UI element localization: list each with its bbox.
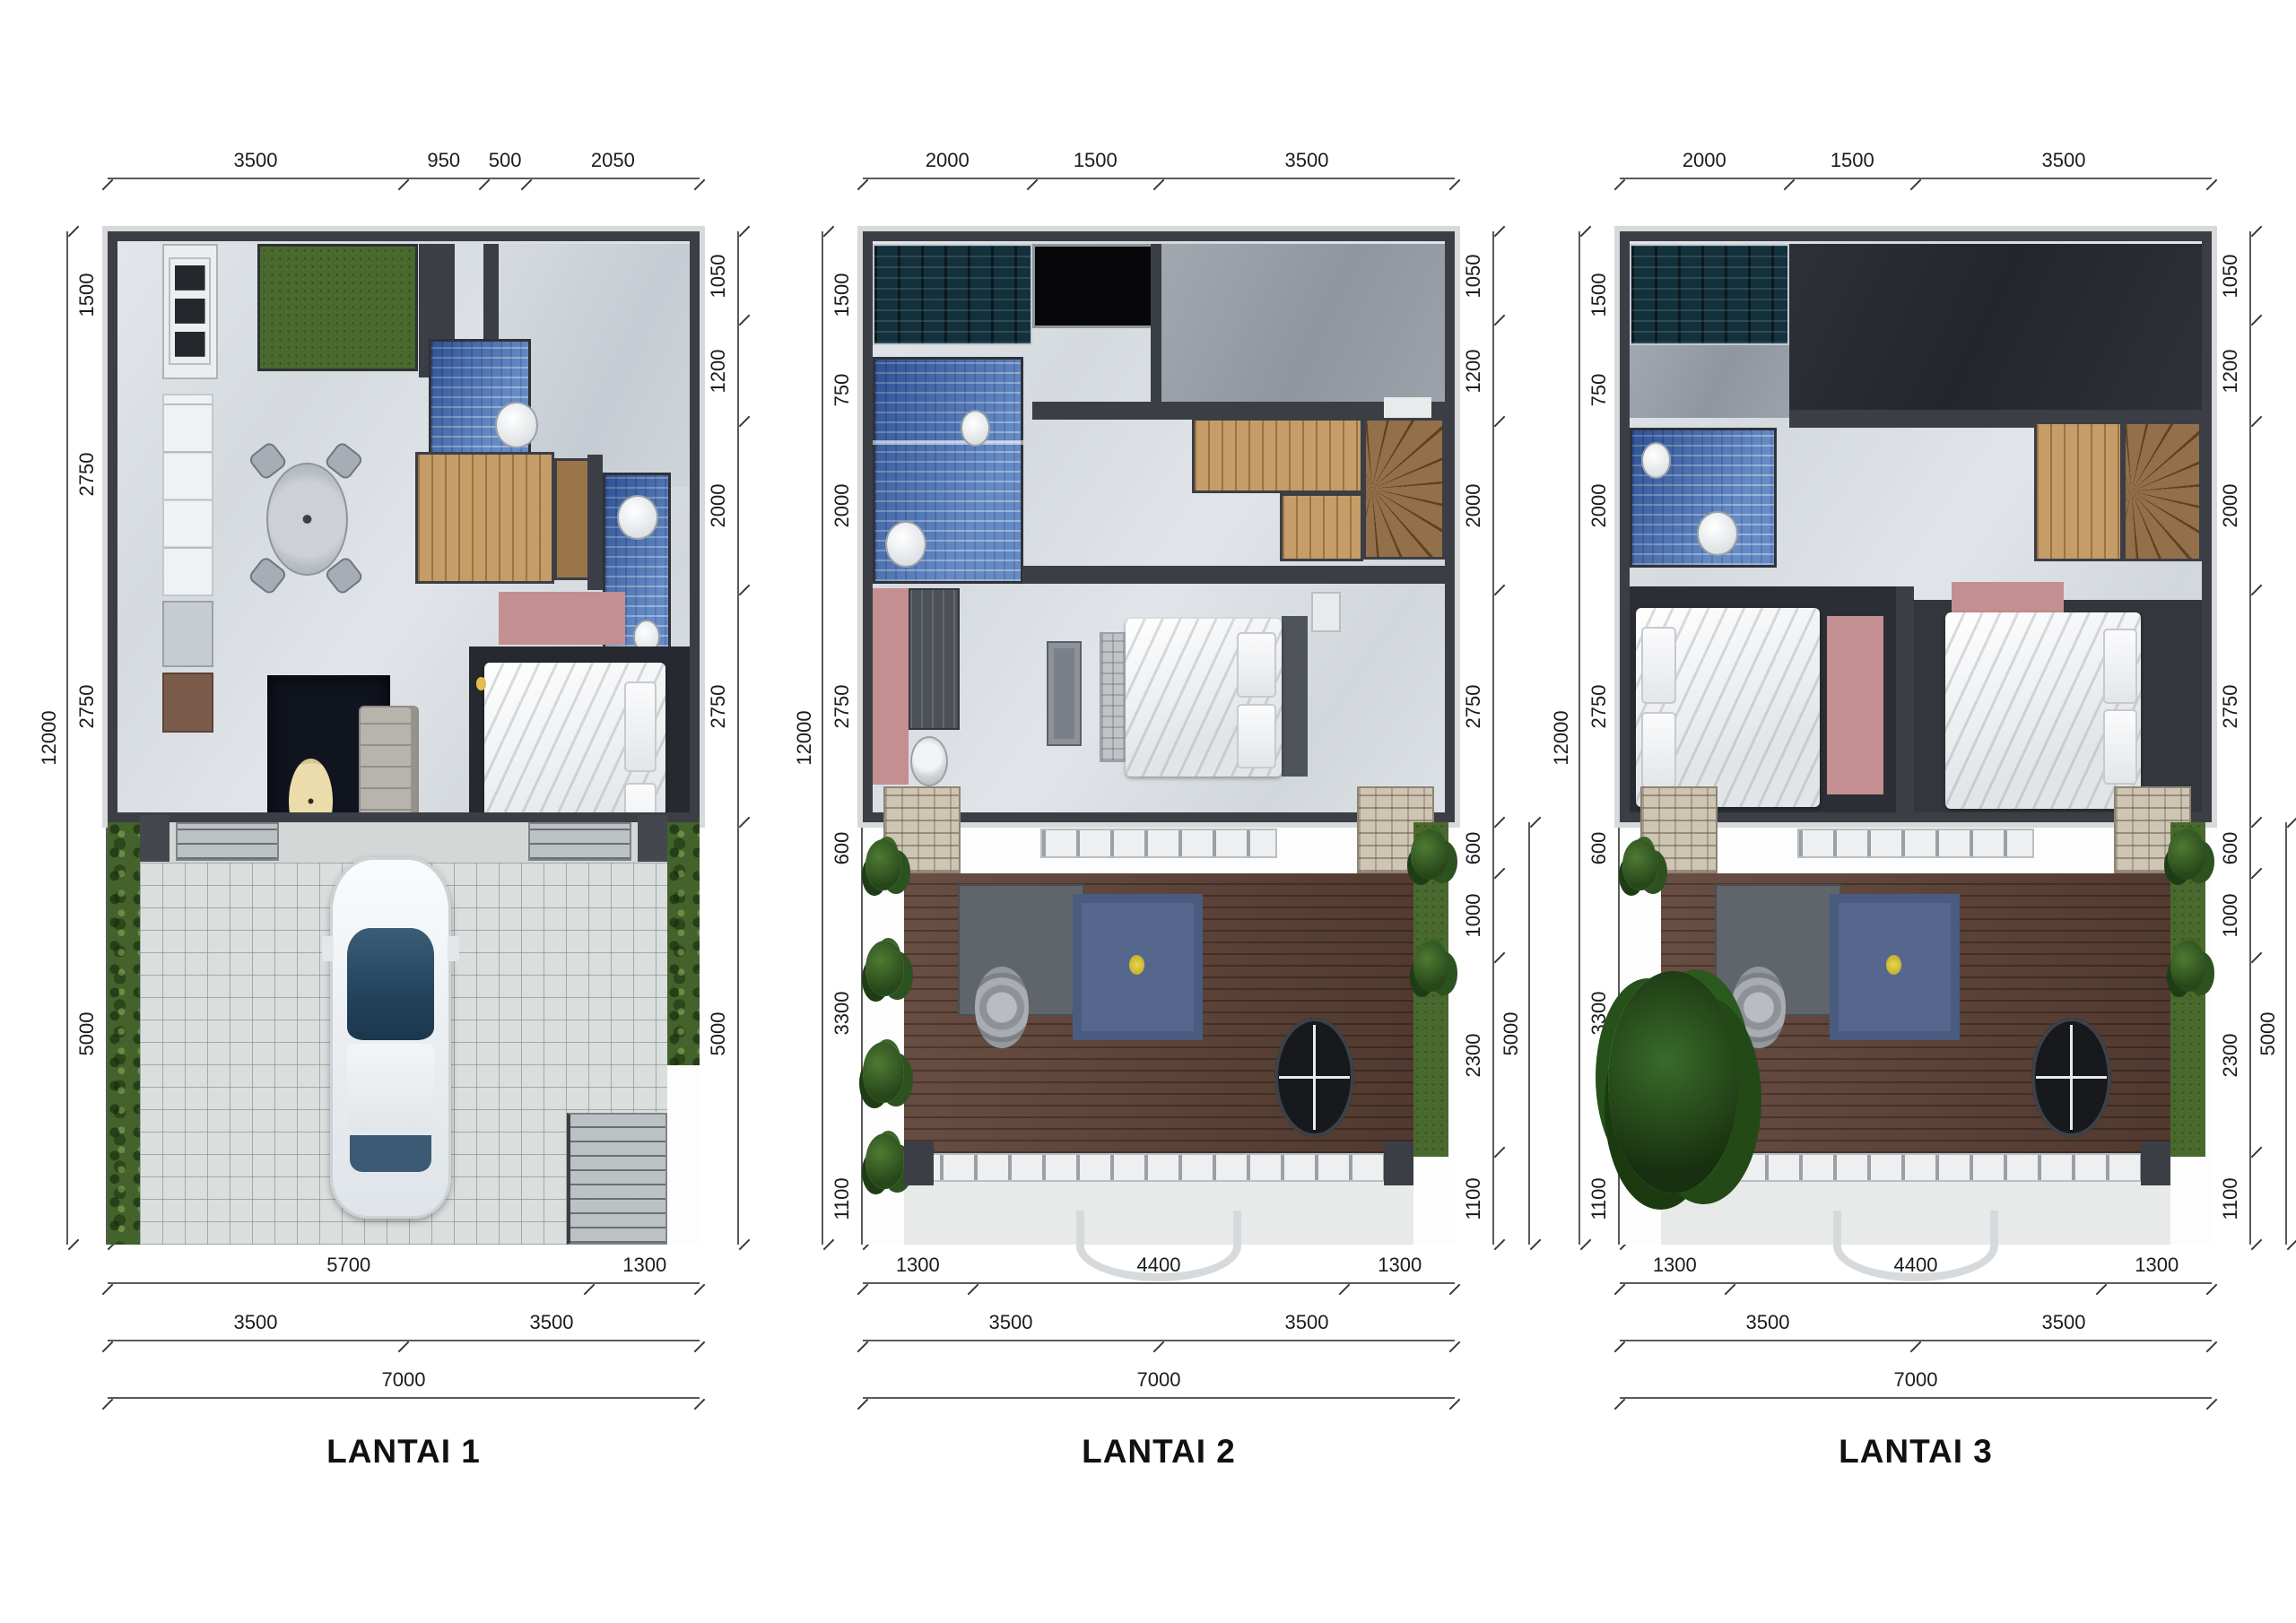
- dim-value: 600: [1587, 831, 1611, 864]
- plan-canvas-lantai-1: [108, 231, 700, 1245]
- dim-value: 1300: [1344, 1254, 1455, 1277]
- dim-value: 1100: [1462, 1177, 1485, 1219]
- dim-value: 1300: [2101, 1254, 2212, 1277]
- dim-segment: 12000: [1544, 231, 1580, 1245]
- dim-segment: 3500: [1620, 1284, 1916, 1341]
- dim-value: 3300: [831, 991, 854, 1035]
- dim-value: 3500: [1159, 1311, 1455, 1334]
- dim-value: 1050: [1462, 254, 1485, 298]
- dim-segment: 5000: [2251, 822, 2287, 1245]
- dim-segment: 1200: [2212, 320, 2251, 421]
- dim-value: 1200: [1462, 349, 1485, 393]
- planter: [638, 815, 667, 862]
- floor-plan-group-2: 2000 1500 3500 12000 1500 750 2000 2750 …: [787, 135, 1530, 1506]
- dim-value: 2750: [831, 684, 854, 728]
- dim-value: 5700: [108, 1254, 589, 1277]
- dim-value: 1500: [1789, 149, 1916, 172]
- dim-segment: 2000: [700, 421, 739, 590]
- dim-value: 1500: [831, 273, 854, 317]
- dim-segment: 1050: [1455, 231, 1494, 320]
- floor-label: LANTAI 2: [863, 1433, 1455, 1471]
- porch-steps: [528, 822, 632, 861]
- outdoor-dining-table: [2031, 1018, 2112, 1137]
- dim-segment: 3500: [1916, 135, 2212, 179]
- dim-segment: 1500: [1580, 231, 1620, 358]
- dim-segment: 3500: [863, 1284, 1159, 1341]
- dim-segment: 7000: [108, 1341, 700, 1399]
- dim-value: 7000: [108, 1368, 700, 1392]
- dim-value: 3500: [863, 1311, 1159, 1334]
- dim-value: 12000: [793, 710, 816, 765]
- dim-segment: 2000: [863, 135, 1032, 179]
- dim-value: 3500: [1159, 149, 1455, 172]
- dim-chain-left-overall: 12000: [1544, 231, 1580, 1245]
- floor-plan-group-1: 3500 950 500 2050 12000 1500 2750 2750 5…: [32, 135, 775, 1506]
- dim-segment: 3500: [108, 135, 404, 179]
- dim-segment: 7000: [863, 1341, 1455, 1399]
- dim-segment: 7000: [1620, 1341, 2212, 1399]
- dim-segment: 4400: [973, 1252, 1345, 1284]
- dim-value: 2000: [831, 484, 854, 528]
- dim-segment: 12000: [32, 231, 68, 1245]
- dim-chain-bottom-3: 7000: [863, 1341, 1455, 1399]
- car-rear-window: [350, 1135, 431, 1172]
- dim-value: 2750: [75, 684, 99, 728]
- dim-value: 2750: [2219, 684, 2242, 728]
- terrace-railing: [1661, 1153, 2170, 1182]
- dim-value: 2750: [75, 452, 99, 496]
- dim-value: 750: [831, 373, 854, 406]
- dim-value: 2750: [1587, 684, 1611, 728]
- dim-segment: 1100: [1455, 1152, 1494, 1245]
- dim-segment: 1100: [1580, 1152, 1620, 1245]
- dim-segment: 1300: [1620, 1252, 1730, 1284]
- car-mirror: [448, 936, 459, 960]
- dim-value: 500: [484, 149, 526, 172]
- dim-segment: 1300: [1344, 1252, 1455, 1284]
- gate-post: [1384, 1141, 1413, 1186]
- tree: [1608, 971, 1738, 1194]
- dim-value: 2300: [2219, 1033, 2242, 1077]
- dim-segment: 5700: [108, 1252, 589, 1284]
- dim-chain-bottom-2: 3500 3500: [1620, 1284, 2212, 1341]
- dim-value: 4400: [1730, 1254, 2102, 1277]
- dim-segment: 5000: [700, 822, 739, 1245]
- dim-value: 1500: [75, 273, 99, 317]
- dim-value: 2000: [707, 484, 730, 528]
- dim-chain-right: 1050 1200 2000 2750 600 1000 2300 1100: [2212, 231, 2251, 1245]
- terrace-bench: [1797, 829, 2034, 859]
- dim-segment: 3500: [404, 1284, 700, 1341]
- exterior-walls: [1620, 231, 2212, 822]
- dim-segment: 1000: [2212, 873, 2251, 958]
- dim-segment: 1300: [863, 1252, 973, 1284]
- dim-value: 1000: [1462, 894, 1485, 938]
- dim-value: 2750: [1462, 684, 1485, 728]
- dim-value: 950: [404, 149, 484, 172]
- dim-segment: 750: [1580, 358, 1620, 421]
- dim-value: 1100: [2219, 1177, 2242, 1219]
- car-windshield: [347, 928, 435, 1039]
- dim-value: 1500: [1587, 273, 1611, 317]
- dim-segment: 750: [823, 358, 863, 421]
- dim-chain-bottom-2: 3500 3500: [108, 1284, 700, 1341]
- dim-segment: 5000: [1494, 822, 1530, 1245]
- dim-value: 2300: [1462, 1033, 1485, 1077]
- dim-value: 1500: [1032, 149, 1159, 172]
- dim-segment: 2750: [1455, 590, 1494, 822]
- dim-value: 2750: [707, 684, 730, 728]
- dim-chain-bottom-1: 1300 4400 1300: [1620, 1252, 2212, 1284]
- dim-segment: 1050: [2212, 231, 2251, 320]
- dim-value: 1300: [863, 1254, 973, 1277]
- dim-value: 1200: [2219, 349, 2242, 393]
- dim-segment: 3500: [1916, 1284, 2212, 1341]
- dim-chain-right-outer: 5000: [2251, 822, 2287, 1245]
- dim-value: 2000: [2219, 484, 2242, 528]
- dim-value: 1300: [1620, 1254, 1730, 1277]
- dim-value: 1050: [2219, 254, 2242, 298]
- floor-plan-group-3: 2000 1500 3500 12000 1500 750 2000 2750 …: [1544, 135, 2287, 1506]
- dim-segment: 2050: [526, 135, 700, 179]
- dim-chain-bottom-2: 3500 3500: [863, 1284, 1455, 1341]
- dim-segment: 2000: [2212, 421, 2251, 590]
- dim-segment: 2750: [700, 590, 739, 822]
- outdoor-dining-table: [1274, 1018, 1355, 1137]
- plant: [1411, 829, 1449, 881]
- dim-value: 1200: [707, 349, 730, 393]
- dim-value: 600: [2219, 831, 2242, 864]
- dim-value: 7000: [863, 1368, 1455, 1392]
- exterior-walls: [863, 231, 1455, 822]
- dim-segment: 950: [404, 135, 484, 179]
- dim-chain-left-overall: 12000: [787, 231, 823, 1245]
- gate-post: [2141, 1141, 2170, 1186]
- dim-value: 5000: [707, 1011, 730, 1055]
- dim-value: 3500: [108, 149, 404, 172]
- outdoor-table: [975, 967, 1028, 1047]
- dim-value: 3500: [404, 1311, 700, 1334]
- dim-chain-top: 3500 950 500 2050: [108, 135, 700, 179]
- dim-segment: 1100: [2212, 1152, 2251, 1245]
- dim-chain-bottom-3: 7000: [1620, 1341, 2212, 1399]
- dim-segment: 1100: [823, 1152, 863, 1245]
- floor-label: LANTAI 3: [1620, 1433, 2212, 1471]
- dim-segment: 2000: [1620, 135, 1789, 179]
- floor-label: LANTAI 1: [108, 1433, 700, 1471]
- dim-segment: 2750: [1580, 590, 1620, 822]
- dim-value: 1000: [2219, 894, 2242, 938]
- dim-segment: 600: [2212, 822, 2251, 873]
- dim-chain-left: 1500 2750 2750 5000: [68, 231, 108, 1245]
- dim-chain-bottom-1: 5700 1300: [108, 1252, 700, 1284]
- dim-value: 1100: [1587, 1177, 1611, 1219]
- dim-value: 1100: [831, 1177, 854, 1219]
- dim-segment: 1500: [1032, 135, 1159, 179]
- gate-post: [904, 1141, 934, 1186]
- dim-segment: 2750: [823, 590, 863, 822]
- dim-segment: 1300: [2101, 1252, 2212, 1284]
- dim-segment: 2750: [68, 590, 108, 822]
- dim-segment: 2300: [2212, 958, 2251, 1152]
- hedge: [108, 822, 140, 1245]
- dim-chain-bottom-1: 1300 4400 1300: [863, 1252, 1455, 1284]
- dim-segment: 3300: [823, 873, 863, 1152]
- car-mirror: [322, 936, 334, 960]
- dim-segment: 600: [823, 822, 863, 873]
- terrace-railing: [904, 1153, 1413, 1182]
- dim-value: 5000: [75, 1011, 99, 1055]
- dim-segment: 1300: [589, 1252, 700, 1284]
- dim-value: 3500: [1916, 1311, 2212, 1334]
- dim-value: 3500: [1620, 1311, 1916, 1334]
- dim-segment: 3500: [108, 1284, 404, 1341]
- dim-segment: 2750: [2212, 590, 2251, 822]
- dim-chain-bottom-3: 7000: [108, 1341, 700, 1399]
- plan-canvas-lantai-3: [1620, 231, 2212, 1245]
- dim-segment: 12000: [787, 231, 823, 1245]
- dim-segment: 3500: [1159, 135, 1455, 179]
- dim-value: 2000: [1462, 484, 1485, 528]
- dim-segment: 600: [1580, 822, 1620, 873]
- porch-steps: [176, 822, 280, 861]
- dim-segment: 1000: [1455, 873, 1494, 958]
- dim-segment: 2300: [1455, 958, 1494, 1152]
- dim-value: 5000: [2257, 1011, 2280, 1055]
- car-roof: [347, 1044, 435, 1131]
- dim-segment: 1050: [700, 231, 739, 320]
- dim-value: 3300: [1587, 991, 1611, 1035]
- dim-value: 12000: [38, 710, 61, 765]
- exterior-walls: [108, 231, 700, 822]
- dim-segment: 2000: [1455, 421, 1494, 590]
- dim-segment: 1200: [1455, 320, 1494, 421]
- dim-value: 1050: [707, 254, 730, 298]
- plant: [2168, 829, 2206, 881]
- dim-segment: 500: [484, 135, 526, 179]
- dim-chain-left-overall: 12000: [32, 231, 68, 1245]
- terrace-bench: [1040, 829, 1277, 859]
- dim-value: 1300: [589, 1254, 700, 1277]
- dim-value: 2000: [1587, 484, 1611, 528]
- dim-segment: 2750: [68, 358, 108, 590]
- dim-segment: 4400: [1730, 1252, 2102, 1284]
- plant: [1413, 941, 1449, 992]
- plant: [865, 839, 901, 890]
- planter: [140, 815, 170, 862]
- dim-segment: 600: [1455, 822, 1494, 873]
- hedge: [667, 822, 700, 1065]
- dim-segment: 1500: [823, 231, 863, 358]
- plant: [865, 941, 904, 996]
- dim-segment: 3500: [1159, 1284, 1455, 1341]
- dim-value: 3500: [1916, 149, 2212, 172]
- dim-value: 5000: [1500, 1011, 1523, 1055]
- plant: [863, 1042, 904, 1103]
- dim-chain-left: 1500 750 2000 2750 600 3300 1100: [823, 231, 863, 1245]
- outdoor-table: [1732, 967, 1785, 1047]
- dim-value: 4400: [973, 1254, 1345, 1277]
- dim-chain-right: 1050 1200 2000 2750 5000: [700, 231, 739, 1245]
- plant: [865, 1133, 904, 1189]
- dim-value: 750: [1587, 373, 1611, 406]
- dim-value: 3500: [108, 1311, 404, 1334]
- dim-chain-top: 2000 1500 3500: [863, 135, 1455, 179]
- dim-value: 2000: [863, 149, 1032, 172]
- dim-value: 12000: [1550, 710, 1573, 765]
- dim-segment: 5000: [68, 822, 108, 1245]
- floor-plan-sheet: 3500 950 500 2050 12000 1500 2750 2750 5…: [0, 0, 2296, 1623]
- dim-value: 2050: [526, 149, 700, 172]
- dim-chain-right-outer: 5000: [1494, 822, 1530, 1245]
- plan-canvas-lantai-2: [863, 231, 1455, 1245]
- dim-segment: 2000: [823, 421, 863, 590]
- dim-value: 2000: [1620, 149, 1789, 172]
- outdoor-stairs: [567, 1113, 667, 1245]
- dim-segment: 1500: [1789, 135, 1916, 179]
- dim-value: 600: [831, 831, 854, 864]
- dim-segment: 1200: [700, 320, 739, 421]
- plant: [2170, 941, 2206, 992]
- dim-segment: 2000: [1580, 421, 1620, 590]
- dim-segment: 1500: [68, 231, 108, 358]
- dim-value: 7000: [1620, 1368, 2212, 1392]
- dim-value: 600: [1462, 831, 1485, 864]
- dim-chain-top: 2000 1500 3500: [1620, 135, 2212, 179]
- dim-chain-right: 1050 1200 2000 2750 600 1000 2300 1100: [1455, 231, 1494, 1245]
- plant: [1622, 839, 1658, 890]
